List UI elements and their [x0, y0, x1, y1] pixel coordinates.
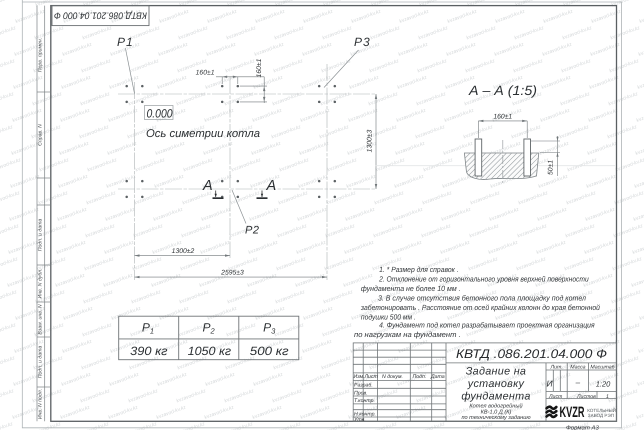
svg-text:–: –	[575, 378, 581, 387]
svg-text:Инв. N подл.: Инв. N подл.	[37, 389, 43, 419]
svg-text:160±1: 160±1	[256, 58, 263, 77]
svg-text:1. * Размер для справок .: 1. * Размер для справок .	[379, 265, 459, 274]
svg-text:Подп.: Подп.	[413, 374, 427, 380]
svg-text:4. Фундамент под котел раз: 4. Фундамент под котел разрабатывает про…	[379, 321, 594, 330]
svg-text:Лист: Лист	[548, 394, 563, 400]
svg-text:Лист: Лист	[364, 374, 379, 380]
svg-text:Подп. и дата: Подп. и дата	[37, 219, 43, 252]
svg-text:забетонировать . Расстояние: забетонировать . Расстояние от осей край…	[360, 303, 601, 312]
svg-text:P2: P2	[203, 321, 216, 336]
svg-text:Пров.: Пров.	[354, 390, 368, 396]
svg-text:1300±3: 1300±3	[367, 129, 374, 152]
svg-text:P2: P2	[245, 225, 259, 237]
svg-text:И: И	[547, 378, 554, 388]
svg-text:по нагрузкам на фундамент .: по нагрузкам на фундамент .	[354, 330, 461, 339]
svg-text:А: А	[266, 178, 277, 194]
svg-text:3. В случае отсутствия бет: 3. В случае отсутствия бетонного пола пл…	[378, 294, 587, 303]
svg-text:KVZR: KVZR	[560, 404, 585, 421]
svg-text:Ось симетрии котла: Ось симетрии котла	[146, 128, 260, 140]
svg-text:160±1: 160±1	[493, 113, 512, 120]
svg-text:500 кг: 500 кг	[250, 344, 289, 358]
svg-text:КВТД.086.201.04.000 Ф: КВТД.086.201.04.000 Ф	[54, 9, 147, 20]
svg-text:N докум.: N докум.	[382, 374, 403, 380]
svg-text:А – А (1:5): А – А (1:5)	[468, 83, 537, 98]
svg-text:P3: P3	[263, 321, 276, 336]
svg-text:фундамента не более 10 м: фундамента не более 10 мм .	[361, 284, 461, 293]
svg-text:1300±2: 1300±2	[172, 248, 195, 255]
svg-text:Справ. N: Справ. N	[37, 124, 43, 146]
svg-text:Утв.: Утв.	[354, 417, 366, 423]
svg-text:Задание на: Задание на	[466, 365, 527, 377]
svg-text:А: А	[202, 178, 213, 194]
svg-text:Перв. примен.: Перв. примен.	[37, 38, 43, 72]
svg-text:P3: P3	[354, 35, 371, 49]
svg-text:0.000: 0.000	[147, 106, 173, 120]
svg-text:Листов: Листов	[576, 394, 596, 400]
svg-text:Масштаб: Масштаб	[590, 365, 615, 371]
svg-text:2595±3: 2595±3	[220, 269, 244, 276]
svg-text:1:20: 1:20	[596, 380, 611, 389]
svg-text:50±1: 50±1	[548, 160, 555, 175]
svg-text:Дата: Дата	[430, 374, 445, 380]
svg-text:по техническому заданию: по техническому заданию	[461, 414, 531, 421]
svg-text:Инв. N дубл.: Инв. N дубл.	[37, 268, 43, 298]
svg-text:P1: P1	[117, 35, 134, 49]
svg-text:КОТЕЛЬНЫЙ: КОТЕЛЬНЫЙ	[587, 407, 616, 413]
svg-text:160±1: 160±1	[196, 70, 215, 77]
svg-text:ЗАВОД РЭП: ЗАВОД РЭП	[588, 413, 614, 418]
svg-text:Лит.: Лит.	[550, 365, 563, 371]
svg-text:Разраб.: Разраб.	[354, 383, 373, 389]
svg-text:Формат А3: Формат А3	[566, 424, 599, 430]
svg-text:Т.контр.: Т.контр.	[354, 398, 375, 404]
svg-text:390 кг: 390 кг	[130, 344, 167, 358]
svg-text:КВТД .086.201.04.000 Ф: КВТД .086.201.04.000 Ф	[456, 347, 607, 361]
svg-text:Масса: Масса	[570, 365, 585, 371]
svg-text:2. Отклонение от горизонтал: 2. Отклонение от горизонтального уровня …	[378, 275, 589, 284]
svg-text:Изм.: Изм.	[354, 374, 365, 380]
svg-text:установку: установку	[467, 378, 525, 390]
svg-text:1: 1	[606, 394, 609, 400]
svg-text:фундамента: фундамента	[461, 391, 530, 403]
svg-text:P1: P1	[142, 321, 154, 336]
svg-text:Взам. инв. N: Взам. инв. N	[37, 304, 43, 334]
svg-text:1050 кг: 1050 кг	[188, 344, 232, 358]
svg-text:Подп. и дата: Подп. и дата	[37, 346, 43, 379]
